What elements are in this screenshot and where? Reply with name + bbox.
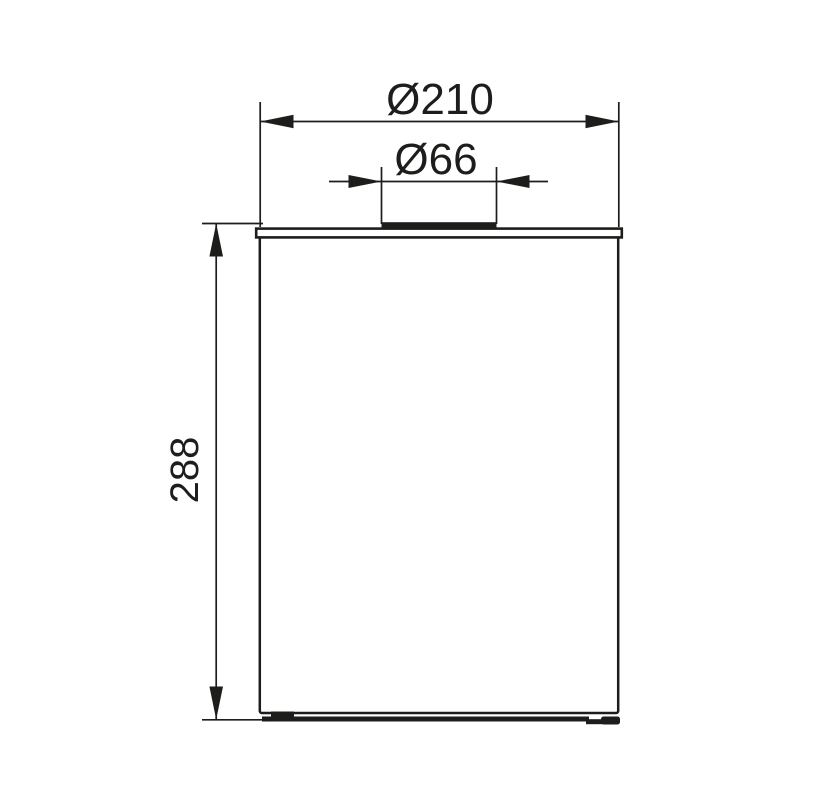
dim-66-label: Ø66: [394, 135, 477, 184]
dimension-height: 288: [163, 224, 268, 720]
bin-body: [260, 230, 618, 713]
bin-lid-center-boss: [382, 222, 497, 228]
dim-66-arrow-left: [349, 175, 382, 188]
technical-drawing-canvas: Ø210 Ø66 288: [0, 0, 829, 797]
waste-bin-dimension-drawing: Ø210 Ø66 288: [0, 0, 829, 797]
dim-66-arrow-right: [497, 175, 530, 188]
dim-210-arrow-left: [260, 115, 293, 128]
bin-outline: [256, 222, 622, 724]
bin-base-right-end: [601, 717, 620, 725]
bin-base-left-step: [271, 712, 294, 718]
dim-288-label: 288: [163, 437, 207, 504]
dim-210-label: Ø210: [386, 75, 494, 124]
dim-288-arrow-down: [209, 687, 223, 720]
bin-lid-rim: [256, 229, 622, 238]
dim-210-arrow-right: [586, 115, 619, 128]
bin-base-bar: [262, 717, 589, 722]
dim-288-arrow-up: [209, 224, 223, 257]
bin-base-right-step: [586, 719, 603, 724]
dimension-opening-diameter: Ø66: [329, 135, 548, 224]
